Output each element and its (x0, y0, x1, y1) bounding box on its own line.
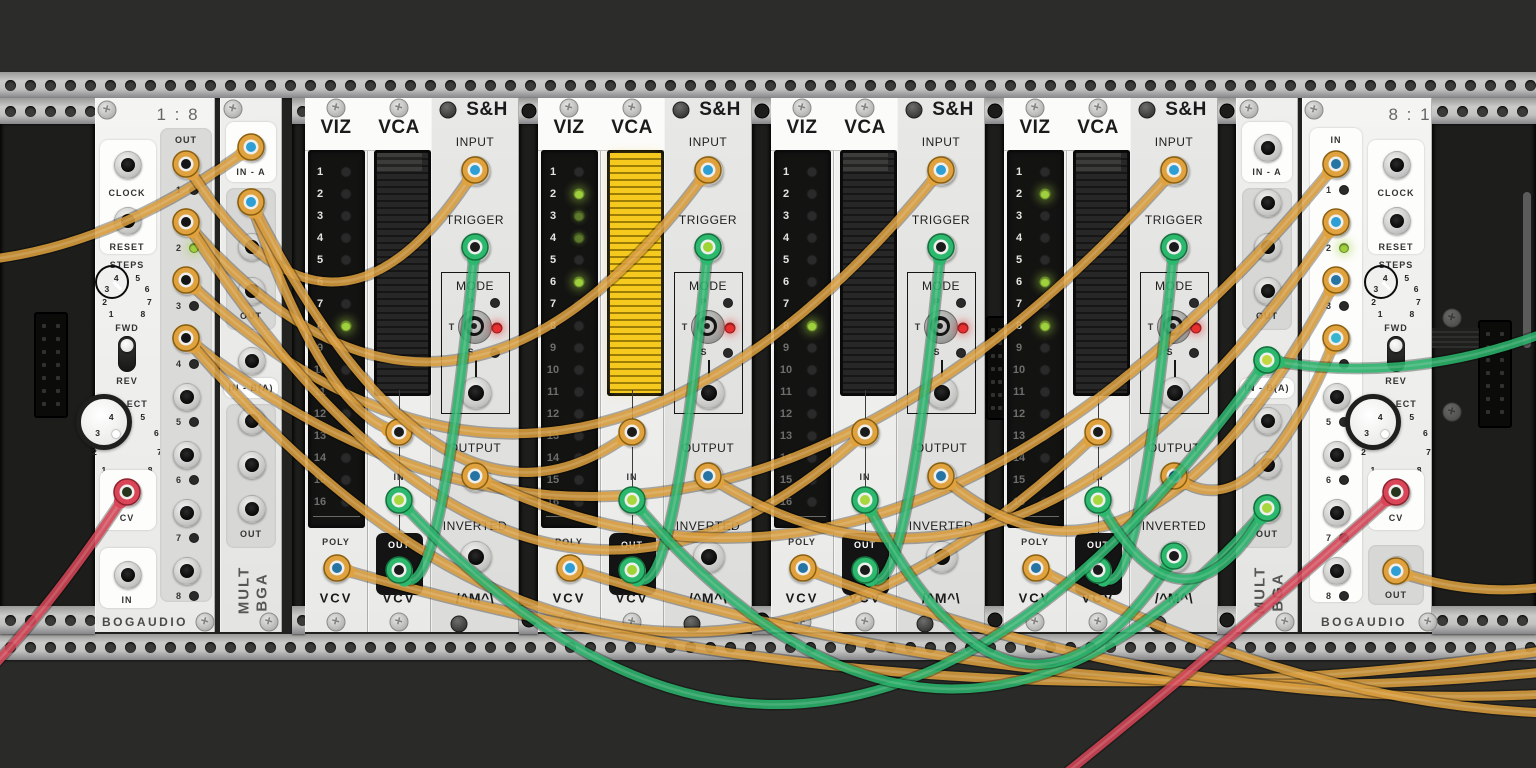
sh-mode-label: MODE (922, 279, 960, 293)
vca-out-jack[interactable] (620, 558, 646, 584)
out-channel-number: 8 (176, 591, 182, 601)
connector-pin (998, 393, 1002, 397)
rail-mount-hole (1219, 104, 1234, 119)
viz-channel-number: 10 (547, 364, 559, 376)
sh-mode-button[interactable] (924, 310, 958, 344)
screw-icon: + (1089, 613, 1108, 632)
rack-gap (519, 98, 538, 634)
out-channel-jack[interactable] (173, 557, 201, 585)
sh-trigger-jack[interactable] (461, 233, 491, 263)
rail-hole (925, 80, 936, 91)
viz-channel-led (807, 453, 818, 464)
viz-channel-number: 8 (317, 320, 323, 332)
sh-input-label: INPUT (922, 135, 961, 149)
select-knob[interactable] (1345, 394, 1401, 450)
viz-channel-led (1040, 431, 1051, 442)
viz-poly-jack[interactable] (556, 555, 584, 583)
rail-hole (1365, 80, 1376, 91)
hex-screw-icon (917, 616, 934, 633)
screw-icon: + (793, 613, 812, 632)
jack-hole (702, 164, 716, 178)
out-channel-number: 3 (176, 301, 182, 311)
viz-channel-number: 6 (317, 276, 323, 288)
connector-pin (991, 367, 995, 371)
viz-channel-led (574, 321, 585, 332)
viz-display (541, 150, 598, 528)
out-channel-jack[interactable] (173, 499, 201, 527)
viz-channel-number: 4 (783, 232, 789, 244)
connector-pin (42, 350, 46, 354)
out-channel-number: 7 (176, 533, 182, 543)
cv-label: CV (120, 513, 135, 523)
rail-hole (445, 80, 456, 91)
rail-hole (105, 642, 116, 653)
vca-level-slider[interactable] (374, 150, 431, 396)
viz-poly-label: POLY (1021, 537, 1049, 547)
mult-in-b-jack[interactable] (1254, 347, 1282, 375)
sh-output-jack[interactable] (927, 462, 957, 492)
jack-hole (1029, 562, 1043, 576)
rail-hole (1125, 642, 1136, 653)
rail-hole (485, 80, 496, 91)
viz-channel-number: 15 (547, 474, 559, 486)
vca-in-jack[interactable] (852, 487, 880, 515)
out-channel-jack[interactable] (173, 441, 201, 469)
viz-channel-number: 16 (1013, 496, 1025, 508)
knob-number: 7 (1416, 297, 1421, 307)
vca-slider-handle[interactable] (843, 153, 888, 171)
screw-icon: + (196, 613, 215, 632)
jack-hole (468, 385, 484, 401)
viz-channel-led (341, 475, 352, 486)
sh-mode-label: MODE (1155, 279, 1193, 293)
viz-channel-led (807, 343, 818, 354)
rail-hole (965, 642, 976, 653)
out-label: OUT (175, 135, 197, 145)
rail-hole (505, 80, 516, 91)
rail-hole (1385, 80, 1396, 91)
jack-hole (180, 448, 194, 462)
fwd-rev-toggle[interactable] (1387, 336, 1405, 372)
rail-hole (705, 80, 716, 91)
vca-title: VCA (1077, 117, 1119, 139)
cv-jack[interactable] (1383, 479, 1411, 507)
vca-in-label: IN (394, 472, 405, 482)
vca-cv-jack[interactable] (1085, 419, 1113, 447)
jack-hole (1261, 141, 1275, 155)
rack-rail (1432, 606, 1536, 634)
sh-trigger-jack[interactable] (1160, 233, 1190, 263)
out-channel-led (189, 359, 199, 369)
connector-pin (42, 363, 46, 367)
rail-hole (1497, 615, 1508, 626)
mult-out-b-jack[interactable] (238, 451, 266, 479)
sh-input-jack[interactable] (1160, 156, 1190, 186)
sh-mode-cv-jack[interactable] (926, 377, 958, 409)
rail-hole (1085, 80, 1096, 91)
sh-mode-s-led (723, 348, 733, 358)
vca-cv-jack[interactable] (619, 419, 647, 447)
in-channel-number: 1 (1326, 185, 1332, 195)
rail-hole (1165, 642, 1176, 653)
rail-hole (1085, 642, 1096, 653)
viz-channel-number: 6 (550, 276, 556, 288)
viz-poly-jack[interactable] (1022, 555, 1050, 583)
sh-mode-cv-jack[interactable] (1159, 377, 1191, 409)
vca-slider-handle[interactable] (377, 153, 422, 171)
rail-hole (1425, 642, 1436, 653)
rail-hole (1245, 642, 1256, 653)
module-viz: +VIZ12345678910111213141516POLYVCV+ (771, 98, 834, 632)
mult-in-b-jack[interactable] (238, 347, 266, 375)
vca-in-jack[interactable] (1085, 487, 1113, 515)
rail-hole (1405, 80, 1416, 91)
viz-channel-number: 6 (783, 276, 789, 288)
sh-brand-logo: /^M^\ (689, 590, 727, 606)
viz-channel-led (341, 497, 352, 508)
jack-hole (1261, 196, 1275, 210)
in-channel-jack[interactable] (1323, 267, 1351, 295)
sh-mode-s-label: S (1166, 347, 1173, 357)
mult-out-a-jack[interactable] (1254, 277, 1282, 305)
rail-hole (345, 80, 356, 91)
mult-out-a-jack[interactable] (238, 233, 266, 261)
rail-hole (5, 80, 16, 91)
viz-channel-number: 3 (783, 210, 789, 222)
vca-in-label: IN (860, 472, 871, 482)
in-channel-jack[interactable] (1323, 441, 1351, 469)
in-channel-jack[interactable] (1323, 325, 1351, 353)
rail-hole (845, 80, 856, 91)
connector-pin (998, 406, 1002, 410)
mult-out-a-jack[interactable] (1254, 233, 1282, 261)
vca-title: VCA (378, 117, 420, 139)
knob-number: 8 (140, 309, 145, 319)
viz-channel-led (341, 189, 352, 200)
viz-title: VIZ (786, 117, 817, 139)
sh-mode-button[interactable] (1157, 310, 1191, 344)
sh-inverted-jack[interactable] (693, 541, 725, 573)
hex-screw-icon (684, 616, 701, 633)
rail-hole (465, 80, 476, 91)
vca-level-slider[interactable] (1073, 150, 1130, 396)
in-label: IN (122, 595, 133, 605)
viz-channel-number: 13 (780, 430, 792, 442)
reset-jack[interactable] (1383, 207, 1411, 235)
sh-trigger-jack[interactable] (927, 233, 957, 263)
in-jack[interactable] (114, 561, 142, 589)
sh-inverted-label: INVERTED (909, 519, 973, 533)
rail-hole (1005, 80, 1016, 91)
viz-channel-number: 1 (783, 166, 789, 178)
rail-hole (1265, 642, 1276, 653)
mult-out-a-jack[interactable] (1254, 189, 1282, 217)
brand-vcv: VCV (383, 591, 416, 606)
jack-hole (859, 494, 873, 508)
rack-rail (292, 606, 305, 634)
rail-hole (125, 80, 136, 91)
vca-cv-jack[interactable] (852, 419, 880, 447)
viz-channel-number: 12 (780, 408, 792, 420)
sh-input-jack[interactable] (461, 156, 491, 186)
jack-hole (180, 506, 194, 520)
rack-background-top (0, 0, 1536, 72)
viz-channel-number: 12 (1013, 408, 1025, 420)
rail-hole (1305, 80, 1316, 91)
viz-channel-led (341, 211, 352, 222)
connector-pin (1500, 358, 1504, 362)
rail-hole (165, 80, 176, 91)
rail-hole (125, 642, 136, 653)
sh-brand-logo: /^M^\ (456, 590, 494, 606)
rail-hole (1437, 615, 1448, 626)
jack-hole (563, 562, 577, 576)
vca-in-jack[interactable] (619, 487, 647, 515)
sh-mode-button[interactable] (458, 310, 492, 344)
viz-channel-number: 12 (314, 408, 326, 420)
mult-out-b-jack[interactable] (238, 407, 266, 435)
reset-jack[interactable] (114, 207, 142, 235)
viz-channel-led (341, 431, 352, 442)
brand-vcv: VCV (786, 591, 819, 606)
sh-input-jack[interactable] (927, 156, 957, 186)
screw-icon: + (856, 613, 875, 632)
sh-mode-p-label: P (1166, 297, 1173, 307)
steps-knob[interactable] (1364, 265, 1398, 299)
in-channel-led (1339, 359, 1349, 369)
sh-title: S&H (932, 99, 974, 121)
viz-channel-number: 15 (780, 474, 792, 486)
jack-hole (1330, 216, 1344, 230)
rail-hole (45, 642, 56, 653)
viz-channel-number: 12 (547, 408, 559, 420)
sh-mode-t-label: T (915, 322, 922, 332)
rail-hole (1325, 80, 1336, 91)
fwd-rev-toggle[interactable] (118, 336, 136, 372)
module-sample-hold: S&HINPUTTRIGGERMODEPTSOUTPUTINVERTED/^M^… (664, 98, 752, 632)
jack-hole (121, 568, 135, 582)
mult-in-b-label: IN - B(A) (229, 383, 274, 393)
out-jack[interactable] (1383, 556, 1411, 584)
sh-mode-button[interactable] (691, 310, 725, 344)
vca-out-jack[interactable] (387, 558, 413, 584)
sh-inverted-jack[interactable] (1159, 541, 1191, 573)
select-knob[interactable] (76, 394, 132, 450)
jack-hole (1261, 414, 1275, 428)
rail-hole (205, 642, 216, 653)
rail-hole (297, 106, 306, 117)
rail-hole (1325, 642, 1336, 653)
rail-hole (5, 615, 16, 626)
rail-mount-hole (521, 613, 536, 628)
sh-inverted-jack[interactable] (460, 541, 492, 573)
rail-hole (1205, 642, 1216, 653)
sh-trigger-jack[interactable] (694, 233, 724, 263)
viz-channel-number: 1 (1016, 166, 1022, 178)
out-channel-jack[interactable] (173, 209, 201, 237)
rail-mount-hole (987, 613, 1002, 628)
sh-inverted-jack[interactable] (926, 541, 958, 573)
sh-output-jack[interactable] (1160, 462, 1190, 492)
rail-hole (485, 642, 496, 653)
out-channel-jack[interactable] (173, 267, 201, 295)
clock-jack[interactable] (114, 151, 142, 179)
mult-out-b-jack[interactable] (1254, 451, 1282, 479)
rail-hole (45, 106, 56, 117)
jack-hole (1330, 448, 1344, 462)
viz-channel-number: 5 (550, 254, 556, 266)
out-channel-jack[interactable] (173, 151, 201, 179)
jack-hole (1330, 332, 1344, 346)
vca-level-fill (377, 153, 428, 393)
connector-pin (998, 341, 1002, 345)
mult-in-a-jack[interactable] (1254, 134, 1282, 162)
rev-label: REV (116, 376, 138, 386)
rail-hole (1225, 642, 1236, 653)
out-channel-jack[interactable] (173, 325, 201, 353)
rail-hole (1025, 642, 1036, 653)
mult-out-a-jack[interactable] (238, 277, 266, 305)
rail-hole (65, 642, 76, 653)
vca-out-label: OUT (1087, 540, 1109, 550)
rail-hole (245, 80, 256, 91)
connector-pin (1500, 345, 1504, 349)
sh-mode-p-led (1189, 298, 1199, 308)
sh-mode-label: MODE (689, 279, 727, 293)
jack-hole (934, 385, 950, 401)
viz-channel-led (807, 299, 818, 310)
in-channel-led (1339, 533, 1349, 543)
viz-title: VIZ (553, 117, 584, 139)
viz-channel-led (574, 409, 585, 420)
jack-hole (121, 486, 135, 500)
viz-display-divider (313, 516, 360, 517)
in-channel-jack[interactable] (1323, 499, 1351, 527)
in-channel-jack[interactable] (1323, 151, 1351, 179)
sh-mode-s-led (1189, 348, 1199, 358)
connector-pin (1500, 410, 1504, 414)
scrollbar[interactable] (1523, 192, 1531, 348)
rail-hole (405, 642, 416, 653)
vca-out-jack[interactable] (853, 558, 879, 584)
viz-poly-label: POLY (788, 537, 816, 547)
jack-hole (1330, 564, 1344, 578)
in-channel-led (1339, 243, 1349, 253)
sh-output-jack[interactable] (461, 462, 491, 492)
viz-poly-label: POLY (322, 537, 350, 547)
connector-pin (991, 341, 995, 345)
in-channel-jack[interactable] (1323, 209, 1351, 237)
knob-pointer (1379, 428, 1390, 439)
jack-hole (702, 470, 716, 484)
mult-out-b-jack[interactable] (238, 495, 266, 523)
clock-jack[interactable] (1383, 151, 1411, 179)
jack-hole (796, 562, 810, 576)
module-bogaudio-1-8: ++1 : 8CLOCKRESETSTEPS12345678FWDREVSELE… (95, 98, 215, 632)
in-channel-jack[interactable] (1323, 383, 1351, 411)
viz-poly-jack[interactable] (323, 555, 351, 583)
rail-hole (645, 642, 656, 653)
viz-channel-number: 15 (314, 474, 326, 486)
viz-channel-led (574, 277, 585, 288)
toggle-knob (121, 339, 134, 352)
mult-out-a-label: OUT (240, 311, 262, 321)
connector-pin (42, 389, 46, 393)
vca-out-jack[interactable] (1086, 558, 1112, 584)
connector-pin (991, 393, 995, 397)
rail-hole (465, 642, 476, 653)
in-channel-jack[interactable] (1323, 557, 1351, 585)
viz-display (774, 150, 831, 528)
viz-channel-led (341, 387, 352, 398)
mult-out-b-label: OUT (1256, 529, 1278, 539)
mult-in-a-jack[interactable] (238, 134, 266, 162)
jack-hole (1168, 164, 1182, 178)
rail-hole (305, 80, 316, 91)
mult-out-a-jack[interactable] (238, 189, 266, 217)
viz-channel-led (341, 255, 352, 266)
sh-output-jack[interactable] (694, 462, 724, 492)
vca-level-slider[interactable] (840, 150, 897, 396)
out-channel-jack[interactable] (173, 383, 201, 411)
mult-out-b-jack[interactable] (1254, 407, 1282, 435)
viz-channel-led (807, 255, 818, 266)
mult-brand-vertical: MULT (1252, 566, 1269, 615)
module-vca: +VCAINOUTVCV+ (368, 98, 431, 632)
vca-cv-jack[interactable] (386, 419, 414, 447)
rail-hole (225, 642, 236, 653)
vca-slider-handle[interactable] (1076, 153, 1121, 171)
connector-pin (1486, 332, 1490, 336)
rail-hole (5, 106, 16, 117)
rail-hole (1485, 642, 1496, 653)
mult-in-a-label: IN - A (1252, 167, 1281, 177)
sh-input-label: INPUT (456, 135, 495, 149)
vca-in-jack[interactable] (386, 487, 414, 515)
steps-knob[interactable] (95, 265, 129, 299)
mult-out-b-label: OUT (240, 529, 262, 539)
rack-background-bottom (0, 660, 1536, 768)
rail-hole (665, 80, 676, 91)
rail-hole (1205, 80, 1216, 91)
knob-number: 6 (1414, 284, 1419, 294)
viz-channel-number: 11 (1013, 386, 1025, 398)
sh-mode-button-center (704, 323, 710, 329)
screw-icon: + (623, 99, 642, 118)
vca-level-slider[interactable] (607, 150, 664, 396)
rail-hole (745, 642, 756, 653)
sh-input-jack[interactable] (694, 156, 724, 186)
screw-icon: + (224, 100, 243, 119)
rail-hole (585, 642, 596, 653)
mult-out-b-jack[interactable] (1254, 495, 1282, 523)
rail-hole (785, 80, 796, 91)
viz-channel-number: 14 (780, 452, 792, 464)
viz-poly-jack[interactable] (789, 555, 817, 583)
cv-jack[interactable] (114, 479, 142, 507)
connector-pin (1486, 384, 1490, 388)
rail-hole (245, 642, 256, 653)
sh-mode-p-led (490, 298, 500, 308)
jack-hole (180, 158, 194, 172)
viz-channel-number: 13 (547, 430, 559, 442)
jack-hole (469, 470, 483, 484)
viz-channel-number: 15 (1013, 474, 1025, 486)
sh-mode-cv-jack[interactable] (460, 377, 492, 409)
out-label: OUT (1385, 590, 1407, 600)
jack-hole (245, 354, 259, 368)
sh-mode-cv-jack[interactable] (693, 377, 725, 409)
